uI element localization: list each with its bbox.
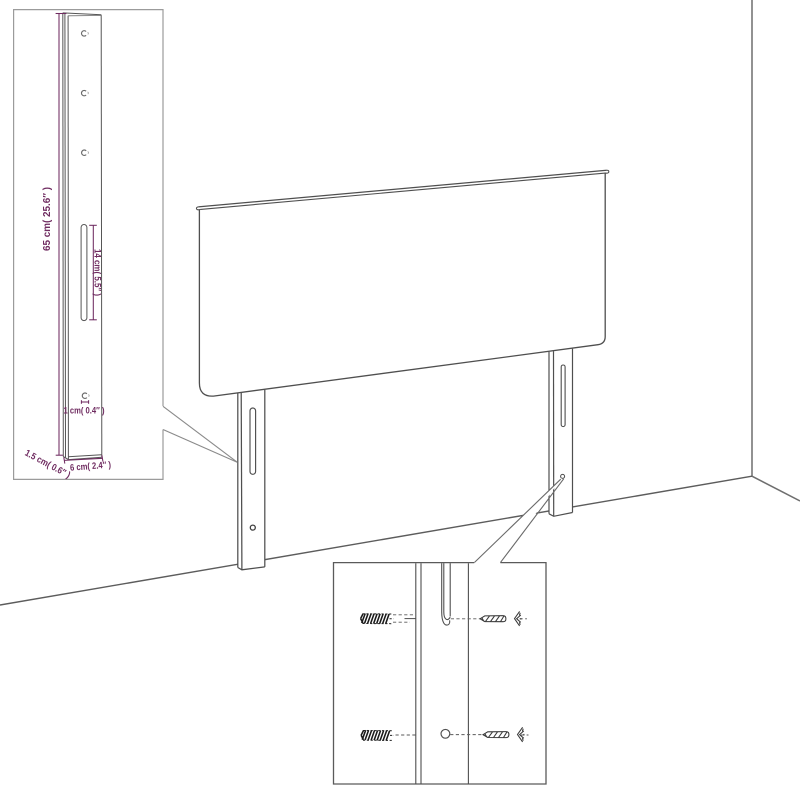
svg-text:65 cm( 25.6′′ ): 65 cm( 25.6′′ ) — [42, 187, 53, 251]
svg-text:1 cm( 0.4′′ ): 1 cm( 0.4′′ ) — [64, 405, 105, 415]
svg-text:14 cm( 5.5′′ ): 14 cm( 5.5′′ ) — [93, 249, 103, 296]
